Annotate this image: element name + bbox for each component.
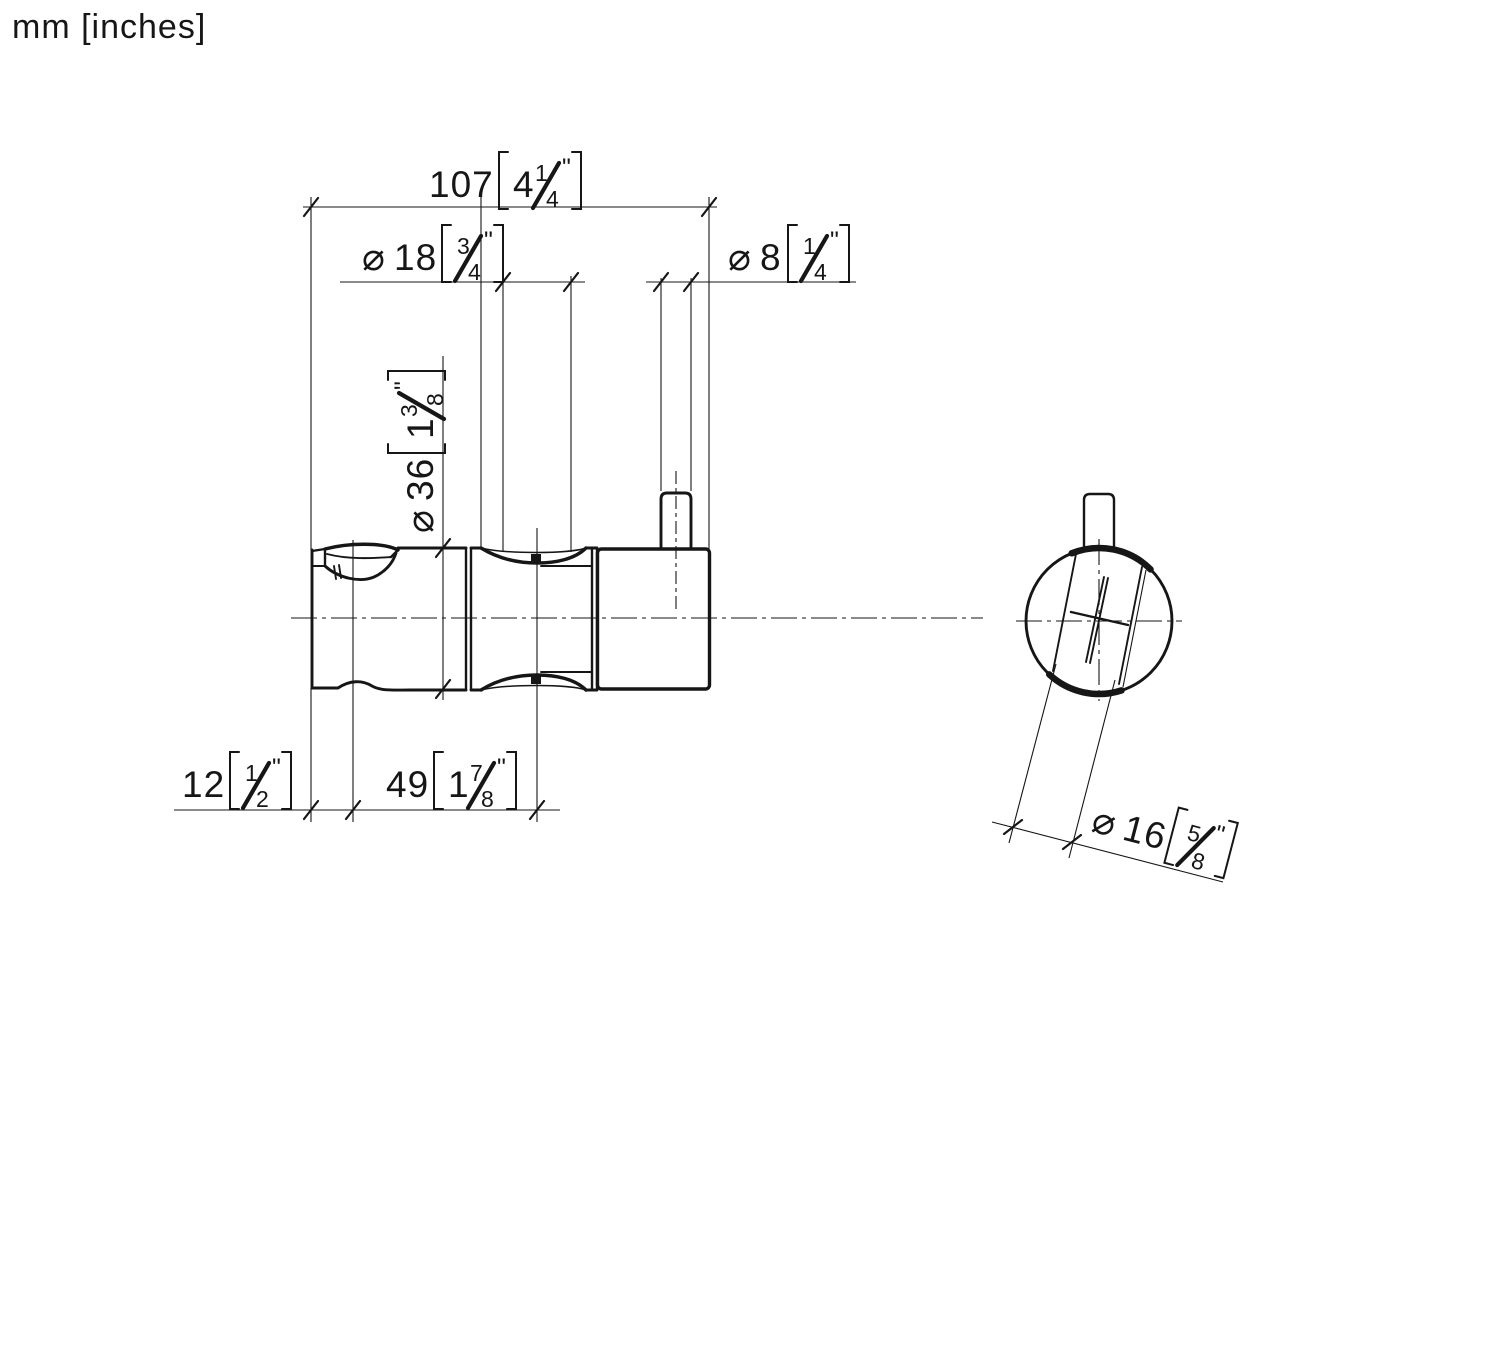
svg-text:4: 4 xyxy=(546,186,559,212)
drawing-canvas: mm [inches] xyxy=(0,0,1500,1349)
svg-text:1: 1 xyxy=(448,764,470,805)
svg-text:49: 49 xyxy=(386,764,429,805)
svg-text:": " xyxy=(272,754,281,782)
rear-cylinder xyxy=(598,549,710,689)
side-view xyxy=(291,471,983,690)
svg-text:12: 12 xyxy=(182,764,225,805)
dimension-saddle-diameter: ⌀ 18 3 4 " xyxy=(340,196,585,552)
diameter-symbol: ⌀ xyxy=(362,237,385,279)
svg-text:18: 18 xyxy=(394,237,437,278)
dimension-wall-offset: 12 1 2 " xyxy=(182,752,291,812)
svg-text:": " xyxy=(830,227,839,255)
svg-text:4: 4 xyxy=(814,259,827,285)
dimension-holder-length: 49 1 7 8 " xyxy=(386,752,516,812)
dimension-handle-diameter: ⌀ 16 5 8 " xyxy=(992,664,1238,882)
svg-text:": " xyxy=(497,754,506,782)
flange-joint-lines xyxy=(466,548,471,690)
svg-text:": " xyxy=(484,227,493,255)
svg-text:8: 8 xyxy=(481,786,494,812)
clamp-detail-top xyxy=(531,554,541,563)
svg-text:1: 1 xyxy=(400,417,441,439)
clamp-detail-bottom xyxy=(531,675,541,684)
knurl-detail xyxy=(334,565,341,579)
dimension-bottom-row: 12 1 2 " 49 1 7 8 " xyxy=(174,528,560,822)
dimension-pin-diameter: ⌀ 8 1 4 " xyxy=(646,225,856,491)
dimension-body-diameter: ⌀ 36 1 3 8 " xyxy=(388,356,450,700)
rim-arc-bottom xyxy=(1049,674,1121,694)
diameter-symbol: ⌀ xyxy=(1088,799,1121,845)
svg-text:16: 16 xyxy=(1119,807,1171,858)
svg-text:8: 8 xyxy=(760,237,782,278)
dim-107-inch-whole: 4 xyxy=(513,164,535,205)
svg-text:": " xyxy=(390,381,418,390)
svg-text:": " xyxy=(562,154,571,182)
front-view xyxy=(1016,494,1182,701)
diameter-symbol: ⌀ xyxy=(728,237,751,279)
holder-middle-section xyxy=(471,548,597,690)
svg-text:36: 36 xyxy=(400,458,441,501)
svg-text:": " xyxy=(1212,820,1228,849)
dim-107-mm: 107 xyxy=(429,164,494,205)
svg-text:4: 4 xyxy=(468,259,481,285)
diameter-symbol: ⌀ xyxy=(400,510,442,533)
svg-text:2: 2 xyxy=(256,786,269,812)
technical-drawing: mm [inches] xyxy=(0,0,1500,1349)
units-note: mm [inches] xyxy=(12,8,206,46)
svg-text:8: 8 xyxy=(422,393,448,406)
